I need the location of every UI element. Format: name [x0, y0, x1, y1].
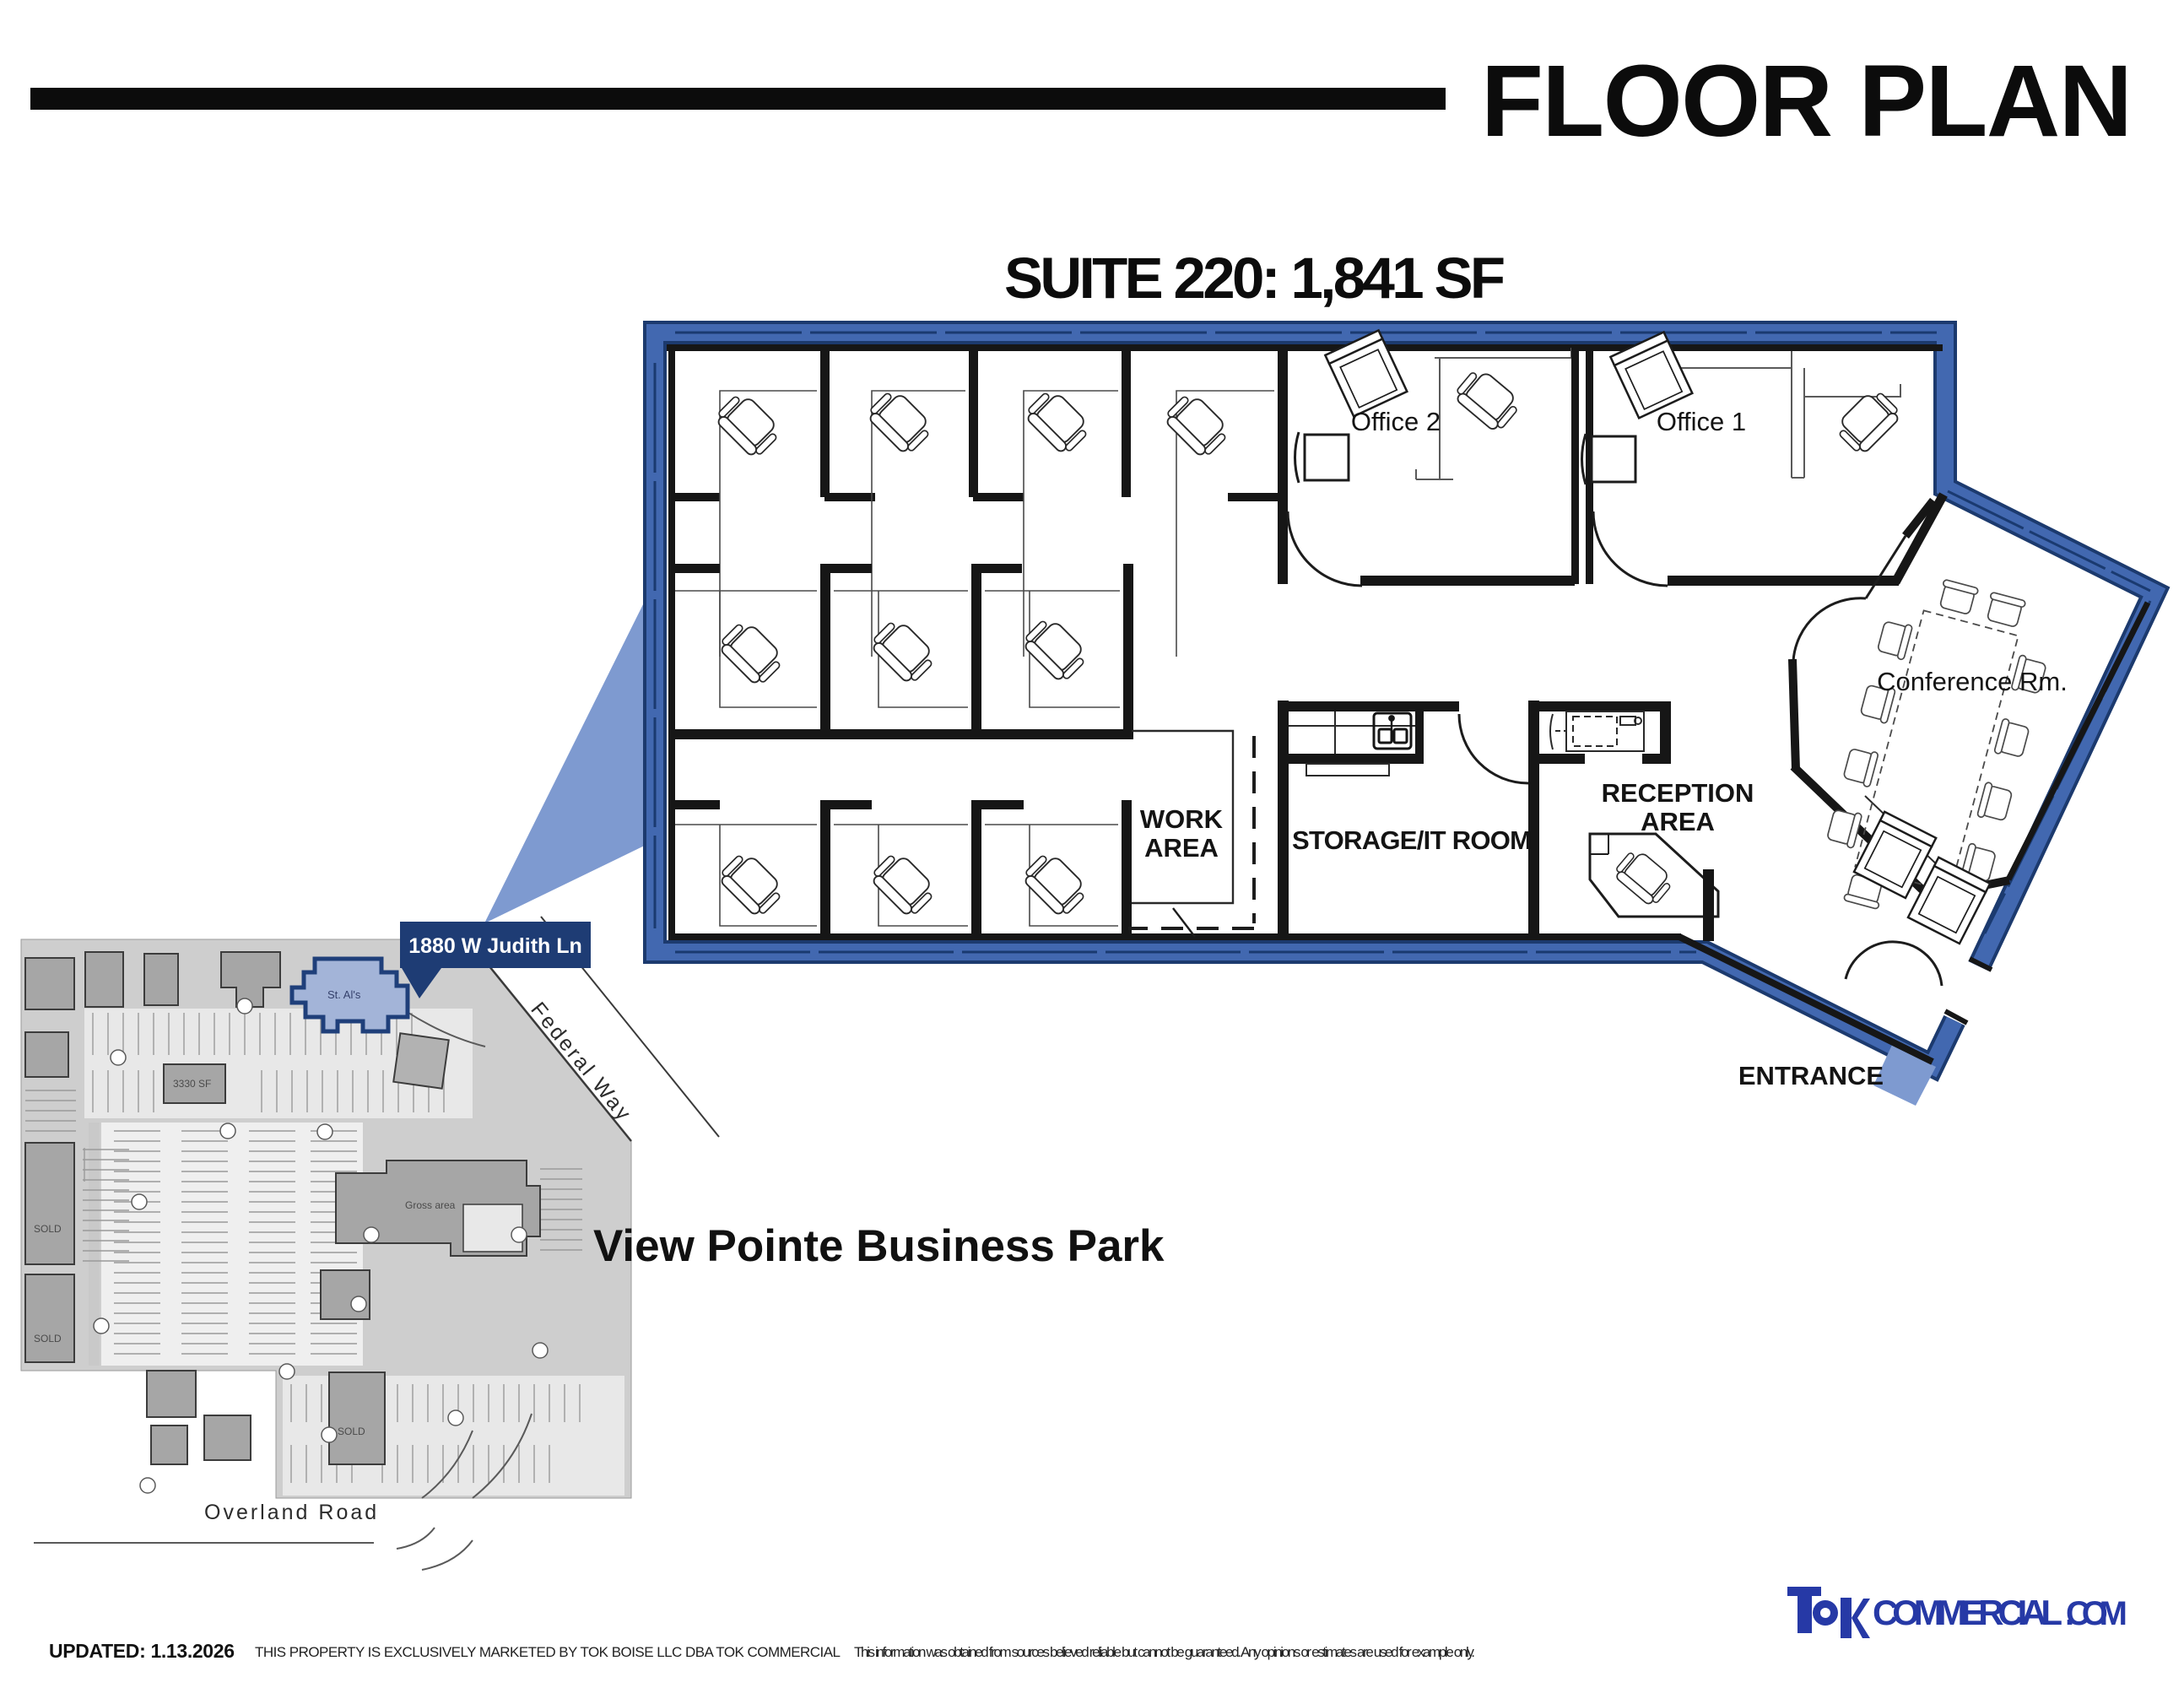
svg-text:This information was obtained: This information was obtained from sourc… — [854, 1644, 1475, 1660]
svg-text:COMMERCIAL: COMMERCIAL — [1873, 1593, 2062, 1632]
svg-text:.COM: .COM — [2065, 1595, 2129, 1632]
svg-text:UPDATED: 1.13.2026: UPDATED: 1.13.2026 — [49, 1640, 235, 1662]
svg-text:SUITE 220: 1,841 SF: SUITE 220: 1,841 SF — [1004, 246, 1504, 311]
svg-text:Office 1: Office 1 — [1657, 407, 1746, 436]
svg-text:Gross area: Gross area — [405, 1199, 456, 1211]
svg-text:Overland Road: Overland Road — [204, 1501, 379, 1524]
svg-text:AREA: AREA — [1144, 833, 1219, 863]
svg-text:SOLD: SOLD — [338, 1426, 365, 1437]
svg-text:Conference Rm.: Conference Rm. — [1877, 667, 2068, 696]
svg-text:AREA: AREA — [1641, 807, 1715, 836]
svg-text:RECEPTION: RECEPTION — [1602, 778, 1754, 808]
svg-text:THIS PROPERTY IS EXCLUSIVELY M: THIS PROPERTY IS EXCLUSIVELY MARKETED BY… — [255, 1644, 841, 1660]
svg-text:View Pointe Business Park: View Pointe Business Park — [593, 1221, 1165, 1271]
svg-text:Office 2: Office 2 — [1351, 407, 1441, 436]
svg-text:WORK: WORK — [1140, 804, 1224, 834]
svg-text:STORAGE/IT ROOM: STORAGE/IT ROOM — [1292, 825, 1532, 855]
svg-text:SOLD: SOLD — [34, 1333, 62, 1344]
svg-text:SOLD: SOLD — [34, 1223, 62, 1235]
svg-text:1880 W Judith Ln: 1880 W Judith Ln — [408, 934, 582, 958]
svg-text:FLOOR PLAN: FLOOR PLAN — [1481, 43, 2133, 158]
svg-text:St. Al's: St. Al's — [327, 988, 361, 1001]
svg-text:3330 SF: 3330 SF — [173, 1078, 211, 1090]
svg-text:ENTRANCE: ENTRANCE — [1738, 1061, 1884, 1090]
